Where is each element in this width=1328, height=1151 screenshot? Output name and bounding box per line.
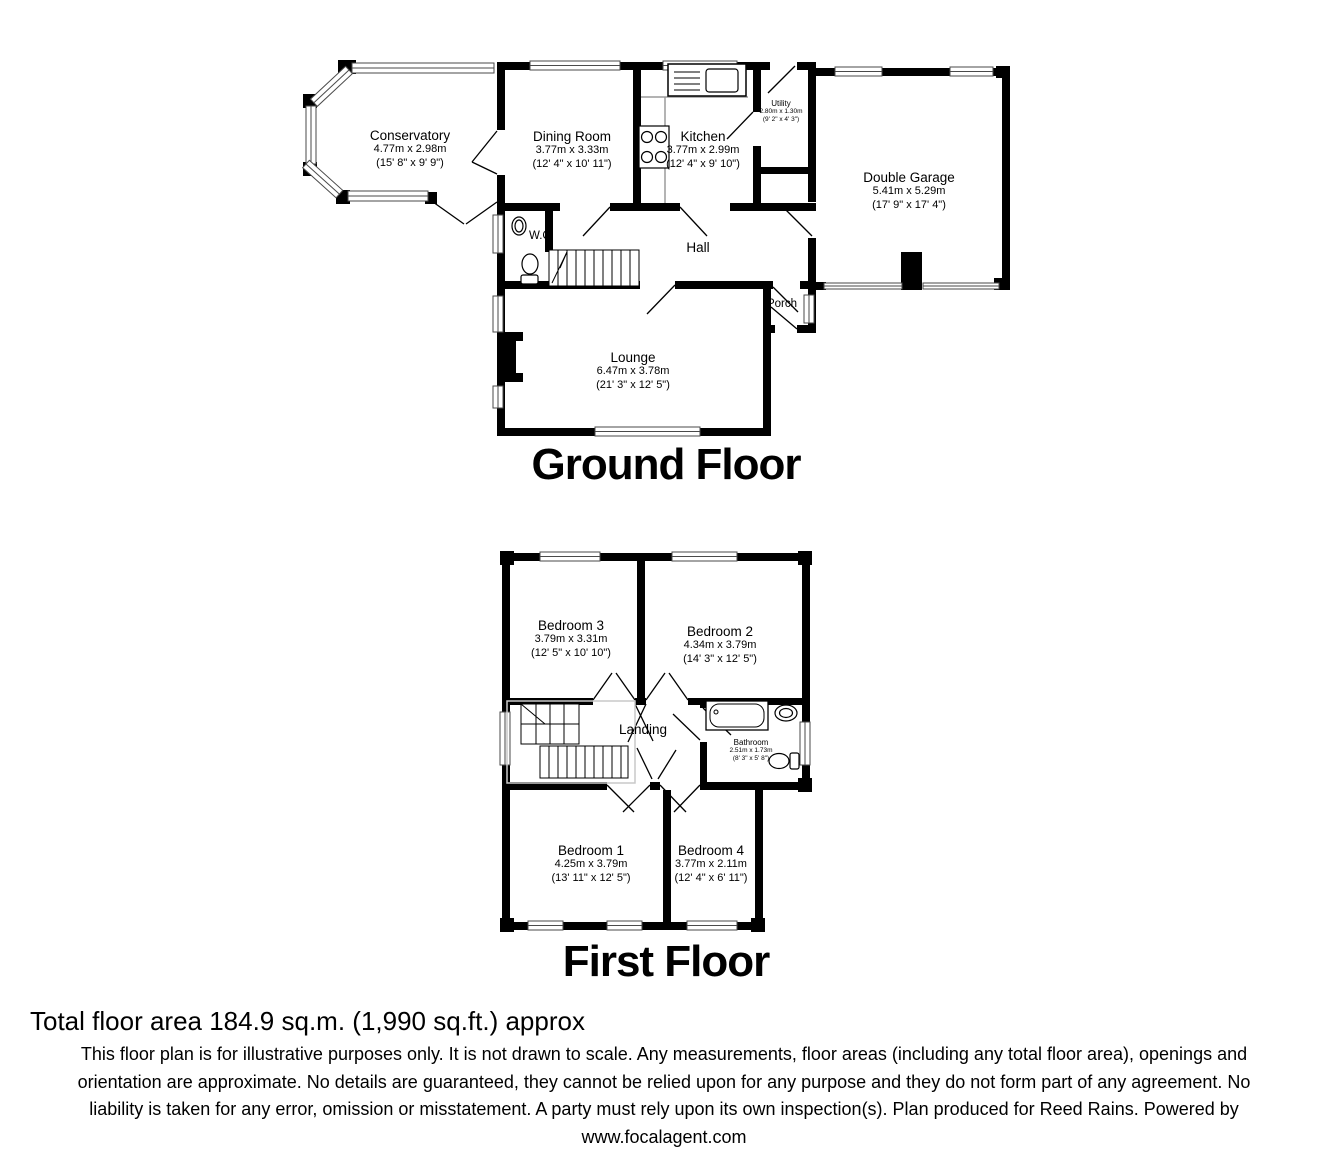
room-label-double-garage: Double Garage 5.41m x 5.29m (17' 9" x 17…	[863, 170, 955, 212]
room-dims-imperial: (9' 2" x 4' 3")	[760, 116, 803, 124]
room-dims-imperial: (12' 4" x 9' 10")	[666, 158, 740, 172]
room-name: Porch	[767, 297, 797, 312]
room-dims-imperial: (17' 9" x 17' 4")	[863, 199, 955, 213]
room-label-conservatory: Conservatory 4.77m x 2.98m (15' 8" x 9' …	[370, 128, 450, 170]
room-dims-metric: 4.25m x 3.79m	[551, 858, 630, 872]
room-label-utility: Utility 2.80m x 1.30m (9' 2" x 4' 3")	[760, 99, 803, 124]
room-dims-metric: 3.77m x 2.99m	[666, 144, 740, 158]
hob-icon	[639, 126, 669, 168]
room-name: Bedroom 2	[683, 624, 757, 639]
wc-toilet-icon	[521, 254, 538, 284]
room-dims-imperial: (14' 3" x 12' 5")	[683, 653, 757, 667]
room-label-kitchen: Kitchen 3.77m x 2.99m (12' 4" x 9' 10")	[666, 129, 740, 171]
room-name: Landing	[619, 722, 667, 737]
ground-staircase-icon	[549, 250, 639, 286]
wc-basin-icon	[512, 217, 526, 235]
first-staircase-icon	[507, 701, 635, 783]
bathroom-basin-icon	[775, 705, 797, 721]
room-name: Hall	[686, 240, 709, 255]
room-dims-metric: 3.77m x 3.33m	[532, 144, 611, 158]
room-label-bedroom-2: Bedroom 2 4.34m x 3.79m (14' 3" x 12' 5"…	[683, 624, 757, 666]
room-label-bathroom: Bathroom 2.51m x 1.73m (8' 3" x 5' 8")	[730, 738, 773, 763]
room-name: W.C.	[529, 229, 554, 244]
room-label-bedroom-1: Bedroom 1 4.25m x 3.79m (13' 11" x 12' 5…	[551, 843, 630, 885]
room-dims-imperial: (12' 5" x 10' 10")	[531, 647, 611, 661]
room-dims-metric: 2.51m x 1.73m	[730, 747, 773, 755]
ground-floor-title: Ground Floor	[531, 440, 800, 490]
kitchen-sink-icon	[668, 64, 746, 96]
room-name: Bathroom	[730, 738, 773, 747]
room-name: Lounge	[596, 350, 670, 365]
disclaimer-line-3: liability is taken for any error, omissi…	[0, 1096, 1328, 1124]
room-name: Conservatory	[370, 128, 450, 143]
first-doors	[593, 673, 731, 812]
room-dims-imperial: (12' 4" x 6' 11")	[675, 872, 748, 886]
room-label-dining-room: Dining Room 3.77m x 3.33m (12' 4" x 10' …	[532, 129, 611, 171]
room-dims-metric: 2.80m x 1.30m	[760, 108, 803, 116]
room-name: Bedroom 1	[551, 843, 630, 858]
room-label-landing: Landing	[619, 722, 667, 737]
room-dims-metric: 3.79m x 3.31m	[531, 633, 611, 647]
room-dims-metric: 4.34m x 3.79m	[683, 639, 757, 653]
room-dims-imperial: (12' 4" x 10' 11")	[532, 158, 611, 172]
room-dims-imperial: (13' 11" x 12' 5")	[551, 872, 630, 886]
room-label-hall: Hall	[686, 240, 709, 255]
first-floor-title: First Floor	[563, 937, 770, 987]
room-name: Double Garage	[863, 170, 955, 185]
room-dims-metric: 5.41m x 5.29m	[863, 185, 955, 199]
disclaimer-line-1: This floor plan is for illustrative purp…	[0, 1041, 1328, 1069]
room-label-porch: Porch	[767, 297, 797, 312]
bath-icon	[706, 701, 768, 730]
disclaimer-line-2: orientation are approximate. No details …	[0, 1069, 1328, 1097]
room-dims-imperial: (8' 3" x 5' 8")	[730, 755, 773, 763]
room-name: Dining Room	[532, 129, 611, 144]
room-label-bedroom-4: Bedroom 4 3.77m x 2.11m (12' 4" x 6' 11"…	[675, 843, 748, 885]
bathroom-toilet-icon	[769, 753, 799, 769]
room-name: Bedroom 4	[675, 843, 748, 858]
disclaimer: This floor plan is for illustrative purp…	[0, 1041, 1328, 1151]
room-name: Utility	[760, 99, 803, 108]
room-label-lounge: Lounge 6.47m x 3.78m (21' 3" x 12' 5")	[596, 350, 670, 392]
room-dims-imperial: (21' 3" x 12' 5")	[596, 379, 670, 393]
room-label-bedroom-3: Bedroom 3 3.79m x 3.31m (12' 5" x 10' 10…	[531, 618, 611, 660]
room-dims-metric: 3.77m x 2.11m	[675, 858, 748, 872]
room-name: Bedroom 3	[531, 618, 611, 633]
floorplan-page: Conservatory 4.77m x 2.98m (15' 8" x 9' …	[0, 0, 1328, 1151]
total-floor-area: Total floor area 184.9 sq.m. (1,990 sq.f…	[30, 1006, 585, 1037]
room-label-wc: W.C.	[529, 229, 554, 244]
fireplace-icon	[497, 332, 523, 382]
room-dims-imperial: (15' 8" x 9' 9")	[370, 157, 450, 171]
room-dims-metric: 4.77m x 2.98m	[370, 143, 450, 157]
disclaimer-line-4: www.focalagent.com	[0, 1124, 1328, 1151]
room-dims-metric: 6.47m x 3.78m	[596, 365, 670, 379]
room-name: Kitchen	[666, 129, 740, 144]
